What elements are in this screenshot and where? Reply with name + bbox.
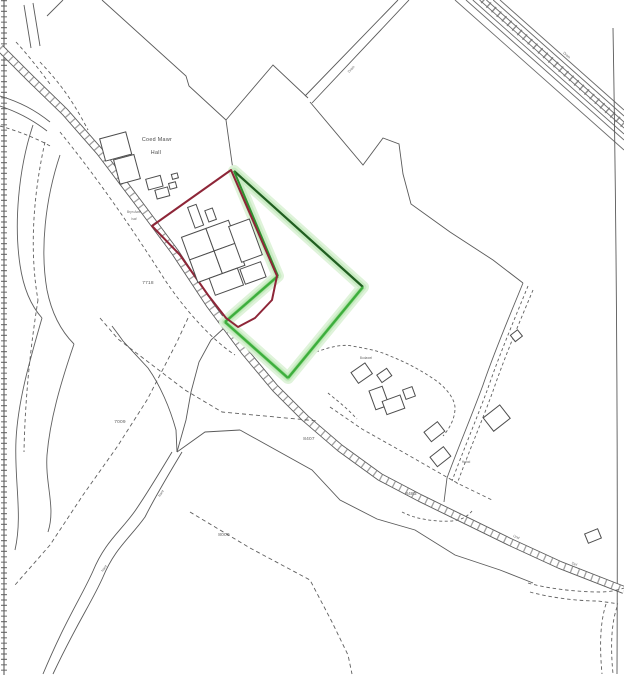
parcel-number: 7718	[142, 280, 154, 286]
site-plan-map: Coed Mawr Hall Bryn Awel Isaf 7718 7009 …	[0, 0, 624, 675]
parcel-number: 7009	[114, 419, 126, 425]
farm-name-label-line1: Bryn Awel	[127, 210, 141, 214]
hall-name-label-line1: Coed Mawr	[142, 137, 172, 143]
house-name-label: Hafod	[462, 460, 471, 464]
farm-name-label-line2: Isaf	[131, 217, 136, 221]
building	[171, 173, 178, 179]
parcel-number: 8000	[218, 532, 230, 538]
house-name-label: Bodawel	[360, 356, 373, 360]
hall-name-label-line2: Hall	[151, 150, 162, 156]
map-background	[0, 0, 624, 675]
parcel-number: 8407	[303, 436, 315, 442]
map-canvas: Coed Mawr Hall Bryn Awel Isaf 7718 7009 …	[0, 0, 624, 675]
building	[169, 182, 177, 190]
parcel-number: 8483	[405, 491, 417, 497]
